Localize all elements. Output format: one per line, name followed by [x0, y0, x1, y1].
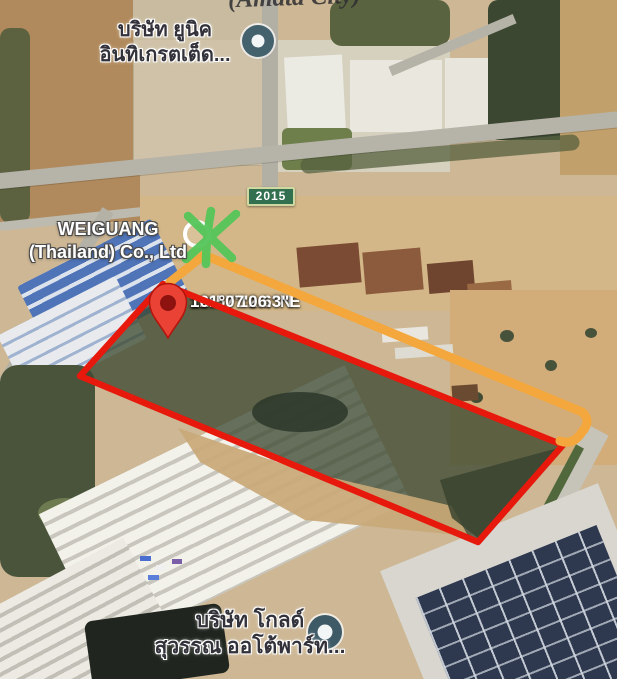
company-line2: (Thailand) Co., Ltd	[8, 241, 208, 264]
red-boundary-outline	[80, 284, 563, 542]
route-badge: 2015	[247, 187, 295, 206]
orange-route-line	[170, 255, 587, 442]
poi-bottom-label[interactable]: บริษัท โกลด์ สุวรรณ ออโต้พาร์ท...	[85, 608, 415, 661]
company-label[interactable]: WEIGUANG (Thailand) Co., Ltd	[8, 218, 208, 265]
location-pin-icon[interactable]	[150, 284, 187, 338]
company-line1: WEIGUANG	[8, 218, 208, 241]
poi-bottom-line1: บริษัท โกลด์	[85, 608, 415, 634]
map-canvas[interactable]: 12°57'12.6"N 101°07'06.3"E (Amata City) …	[0, 0, 617, 679]
poi-top-line1: บริษัท ยูนิค	[30, 18, 300, 43]
poi-top-line2: อินทิเกรตเต็ด...	[30, 43, 300, 68]
poi-bottom-line2: สุวรรณ ออโต้พาร์ท...	[85, 634, 415, 660]
annotation-layer	[0, 0, 617, 679]
poi-top-label[interactable]: บริษัท ยูนิค อินทิเกรตเต็ด...	[30, 18, 300, 68]
